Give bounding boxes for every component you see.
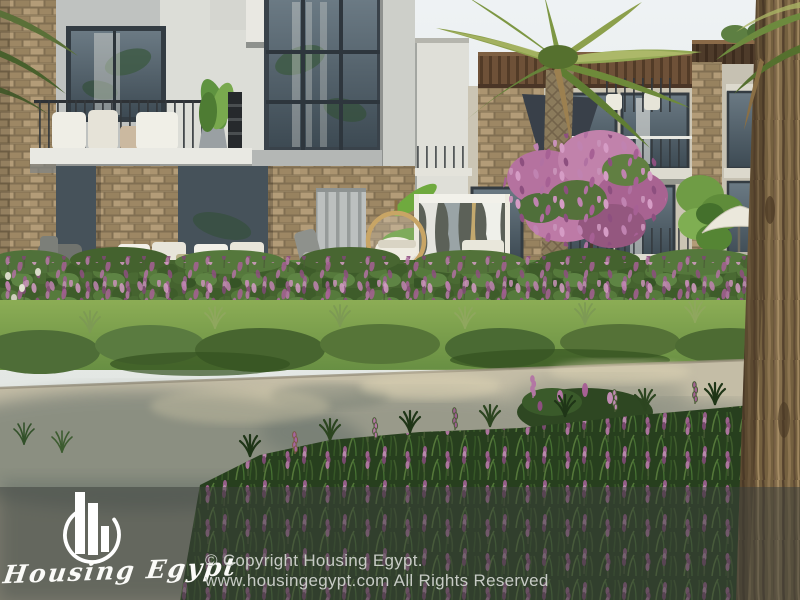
copyright-line-1: © Copyright Housing Egypt. — [205, 551, 549, 571]
real-estate-render: Housing Egypt © Copyright Housing Egypt.… — [0, 0, 800, 600]
brand-name: Housing Egypt — [1, 554, 192, 589]
watermark-bar: Housing Egypt © Copyright Housing Egypt.… — [0, 487, 800, 600]
copyright-text: © Copyright Housing Egypt. www.housingeg… — [205, 551, 549, 590]
copyright-line-2: www.housingegypt.com All Rights Reserved — [205, 571, 549, 591]
buildings-logo-icon — [56, 489, 128, 565]
